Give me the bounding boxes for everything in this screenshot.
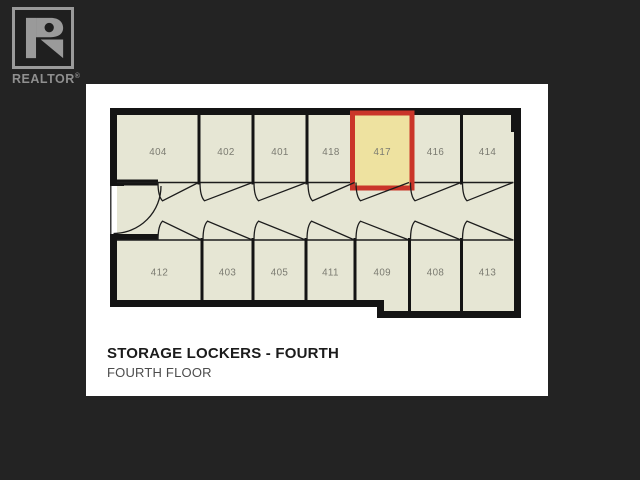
plan-title: STORAGE LOCKERS - FOURTH — [107, 345, 339, 362]
locker-label: 403 — [219, 268, 237, 279]
locker-label: 408 — [427, 268, 445, 279]
plan-subtitle: FOURTH FLOOR — [107, 365, 339, 380]
locker-label: 411 — [322, 268, 339, 279]
wall-pilaster — [511, 115, 518, 132]
locker-label: 417 — [373, 147, 391, 158]
entrance-jamb-wall — [117, 234, 158, 240]
realtor-r-icon — [19, 13, 67, 63]
floorplan-panel: 4044024014184174164144124034054114094084… — [86, 84, 548, 396]
locker-label: 401 — [271, 147, 289, 158]
plan-caption: STORAGE LOCKERS - FOURTH FOURTH FLOOR — [107, 345, 339, 380]
locker-label: 404 — [149, 147, 167, 158]
floor-area — [117, 115, 514, 311]
floor-plan: 4044024014184174164144124034054114094084… — [107, 105, 525, 323]
realtor-logo: REALTOR® — [12, 7, 90, 86]
locker-label: 412 — [151, 268, 169, 279]
locker-label: 416 — [427, 147, 445, 158]
locker-label: 402 — [217, 147, 235, 158]
locker-label: 414 — [479, 147, 497, 158]
registered-mark: ® — [75, 73, 81, 80]
locker-label: 413 — [479, 268, 497, 279]
locker-label: 405 — [271, 268, 289, 279]
realtor-logo-mark — [12, 7, 74, 69]
realtor-logo-text: REALTOR® — [12, 72, 90, 86]
locker-label: 418 — [322, 147, 340, 158]
locker-label: 409 — [373, 268, 391, 279]
